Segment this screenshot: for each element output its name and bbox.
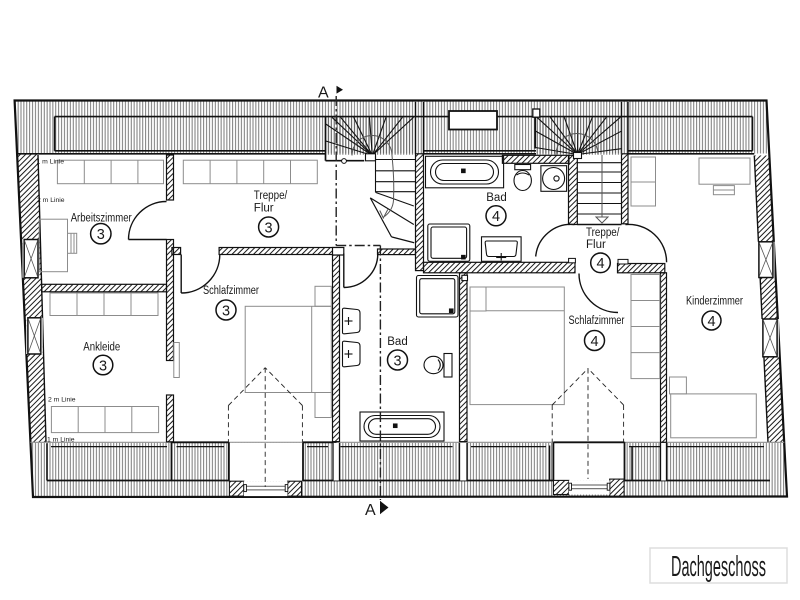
- svg-text:Flur: Flur: [254, 202, 274, 214]
- svg-text:4: 4: [492, 209, 500, 225]
- svg-text:3: 3: [99, 358, 107, 374]
- svg-text:3: 3: [222, 303, 230, 319]
- svg-text:1 m Linie: 1 m Linie: [47, 437, 75, 444]
- svg-text:A: A: [365, 502, 376, 519]
- svg-text:2 m Linie: 2 m Linie: [37, 197, 65, 204]
- svg-text:2 m Linie: 2 m Linie: [48, 397, 76, 404]
- svg-text:A: A: [318, 85, 329, 102]
- svg-text:Arbeitszimmer: Arbeitszimmer: [71, 213, 132, 225]
- svg-text:Schlafzimmer: Schlafzimmer: [203, 285, 259, 297]
- svg-text:Treppe/: Treppe/: [586, 227, 620, 239]
- svg-text:3: 3: [393, 353, 401, 369]
- svg-text:Flur: Flur: [586, 239, 606, 251]
- svg-text:Schlafzimmer: Schlafzimmer: [569, 315, 625, 327]
- svg-text:1 m Linie: 1 m Linie: [37, 159, 65, 166]
- svg-text:Ankleide: Ankleide: [83, 342, 120, 354]
- svg-text:Dachgeschoss: Dachgeschoss: [671, 551, 766, 583]
- svg-text:Bad: Bad: [387, 336, 407, 348]
- svg-text:4: 4: [590, 334, 598, 350]
- svg-text:4: 4: [707, 314, 715, 330]
- svg-text:3: 3: [97, 227, 105, 243]
- svg-text:4: 4: [596, 256, 604, 272]
- svg-text:Treppe/: Treppe/: [254, 190, 288, 202]
- svg-text:Bad: Bad: [486, 192, 506, 204]
- svg-text:Kinderzimmer: Kinderzimmer: [686, 296, 743, 308]
- svg-text:3: 3: [265, 220, 273, 236]
